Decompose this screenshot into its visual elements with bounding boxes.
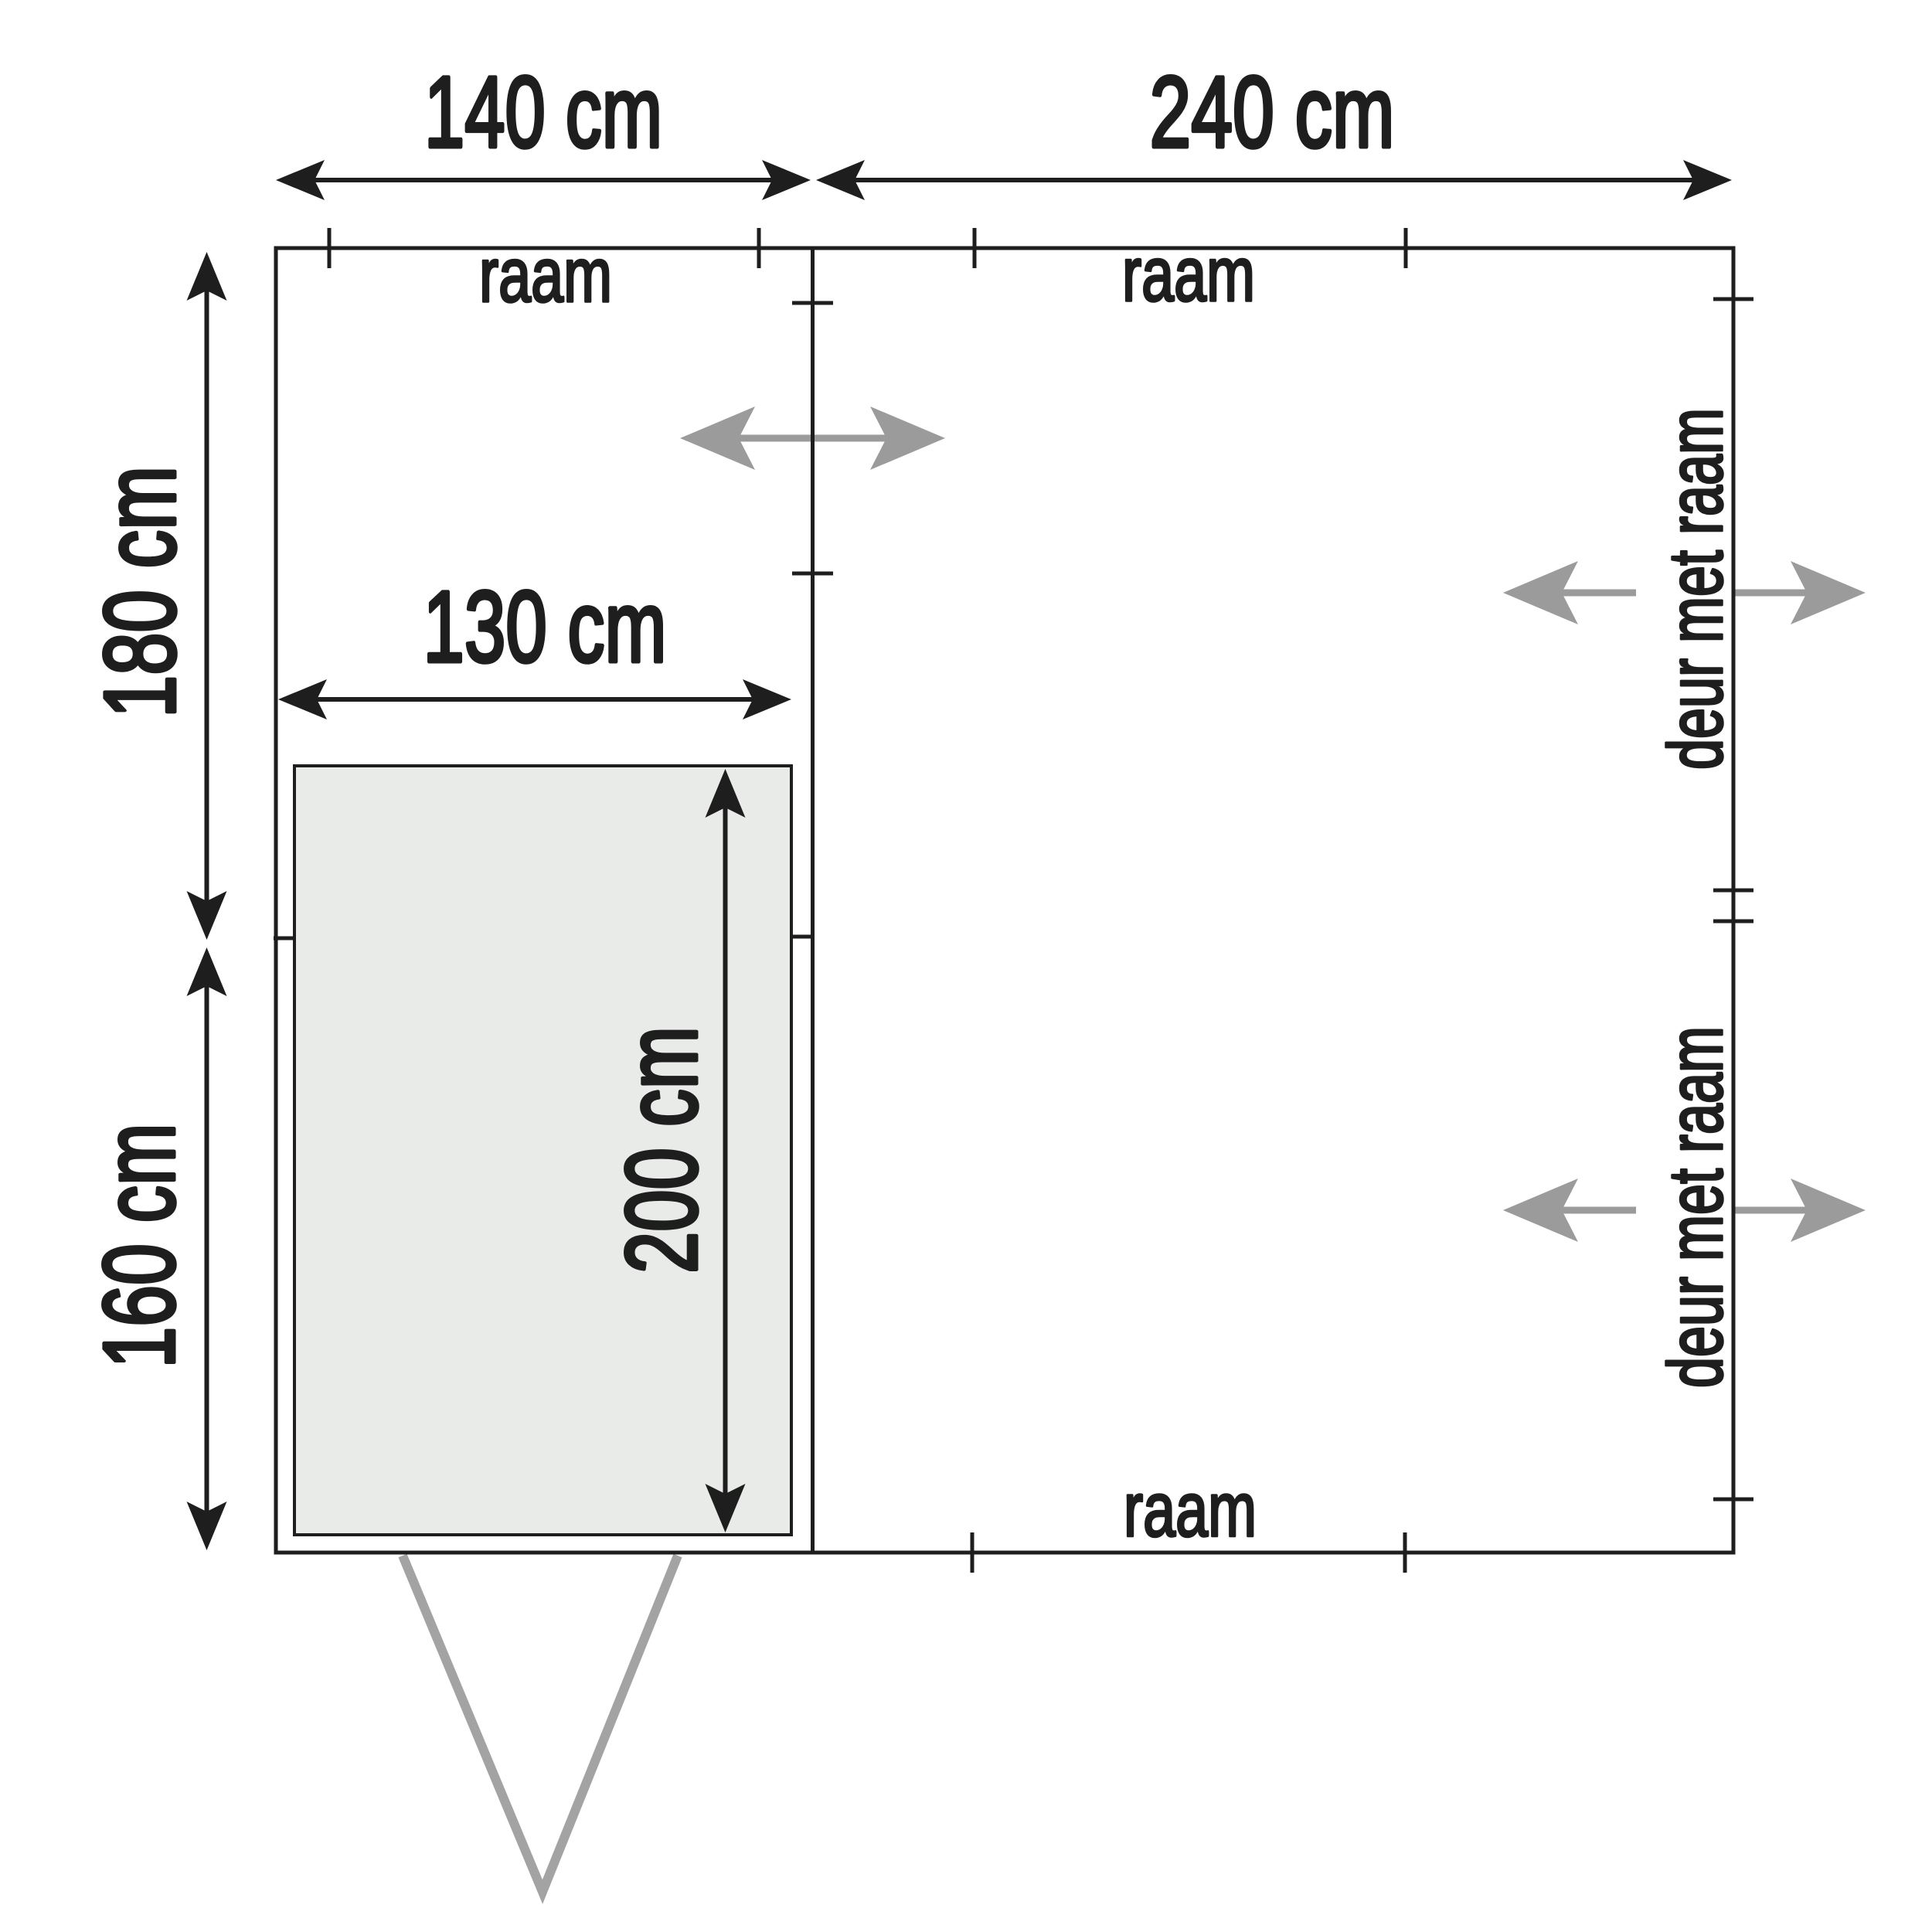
svg-text:130 cm: 130 cm [423, 570, 667, 683]
svg-text:180 cm: 180 cm [83, 466, 196, 718]
svg-text:deur met raam: deur met raam [1652, 408, 1738, 770]
svg-text:160 cm: 160 cm [82, 1124, 196, 1369]
svg-text:deur met raam: deur met raam [1652, 1026, 1738, 1388]
svg-text:200 cm: 200 cm [604, 1026, 718, 1274]
svg-text:raam: raam [479, 232, 612, 318]
svg-text:140 cm: 140 cm [424, 55, 662, 168]
svg-text:raam: raam [1124, 1467, 1257, 1553]
svg-text:240 cm: 240 cm [1150, 55, 1395, 168]
svg-text:raam: raam [1122, 231, 1255, 317]
